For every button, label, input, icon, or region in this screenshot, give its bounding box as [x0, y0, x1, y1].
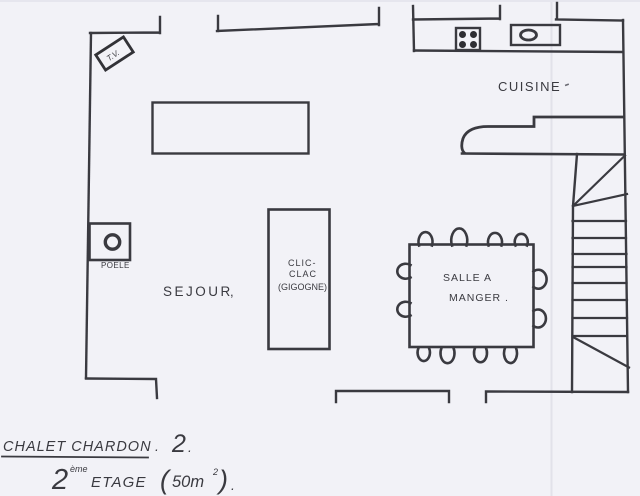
svg-text:ème: ème [70, 464, 88, 474]
svg-text:CUISINE: CUISINE [498, 79, 561, 94]
svg-text:.: . [231, 477, 235, 493]
svg-text:SALLE A: SALLE A [443, 272, 492, 284]
svg-text:MANGER .: MANGER . [449, 292, 509, 304]
svg-text:2: 2 [212, 467, 218, 477]
svg-text:.: . [188, 439, 192, 455]
svg-text:SEJOUR: SEJOUR [163, 284, 233, 299]
svg-text:,: , [230, 284, 234, 299]
svg-text:CLAC: CLAC [289, 269, 317, 279]
svg-text:POELE: POELE [101, 261, 130, 270]
svg-text:.: . [155, 438, 159, 454]
svg-text:ETAGE: ETAGE [91, 474, 147, 491]
svg-text:(: ( [160, 465, 172, 495]
svg-text:(GIGOGNE): (GIGOGNE) [278, 282, 327, 292]
svg-text:CLIC-: CLIC- [288, 258, 317, 268]
svg-text:2: 2 [51, 464, 68, 496]
svg-text:CHALET CHARDON: CHALET CHARDON [3, 439, 152, 455]
svg-text:2: 2 [171, 430, 186, 458]
svg-text:50m: 50m [172, 473, 204, 491]
